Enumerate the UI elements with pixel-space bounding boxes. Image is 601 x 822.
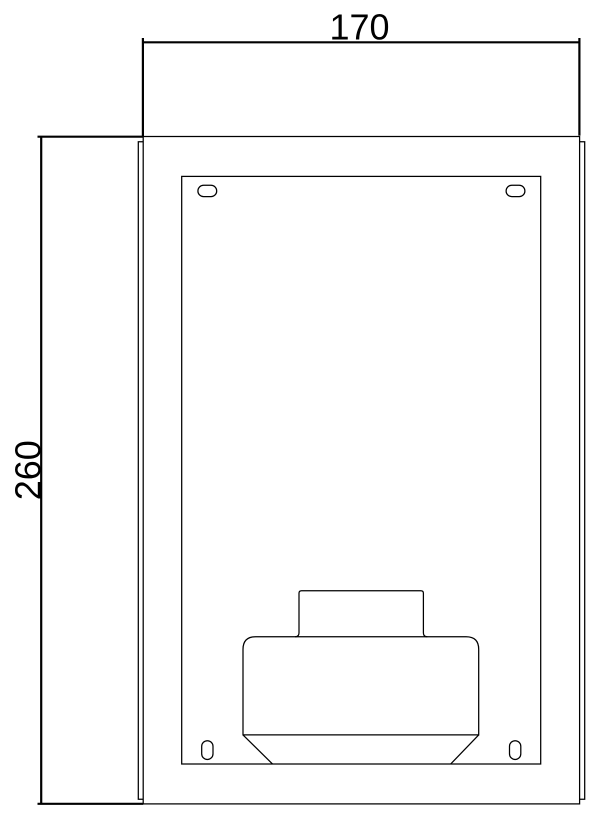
svg-text:170: 170 [329,7,389,48]
svg-text:260: 260 [8,440,49,500]
